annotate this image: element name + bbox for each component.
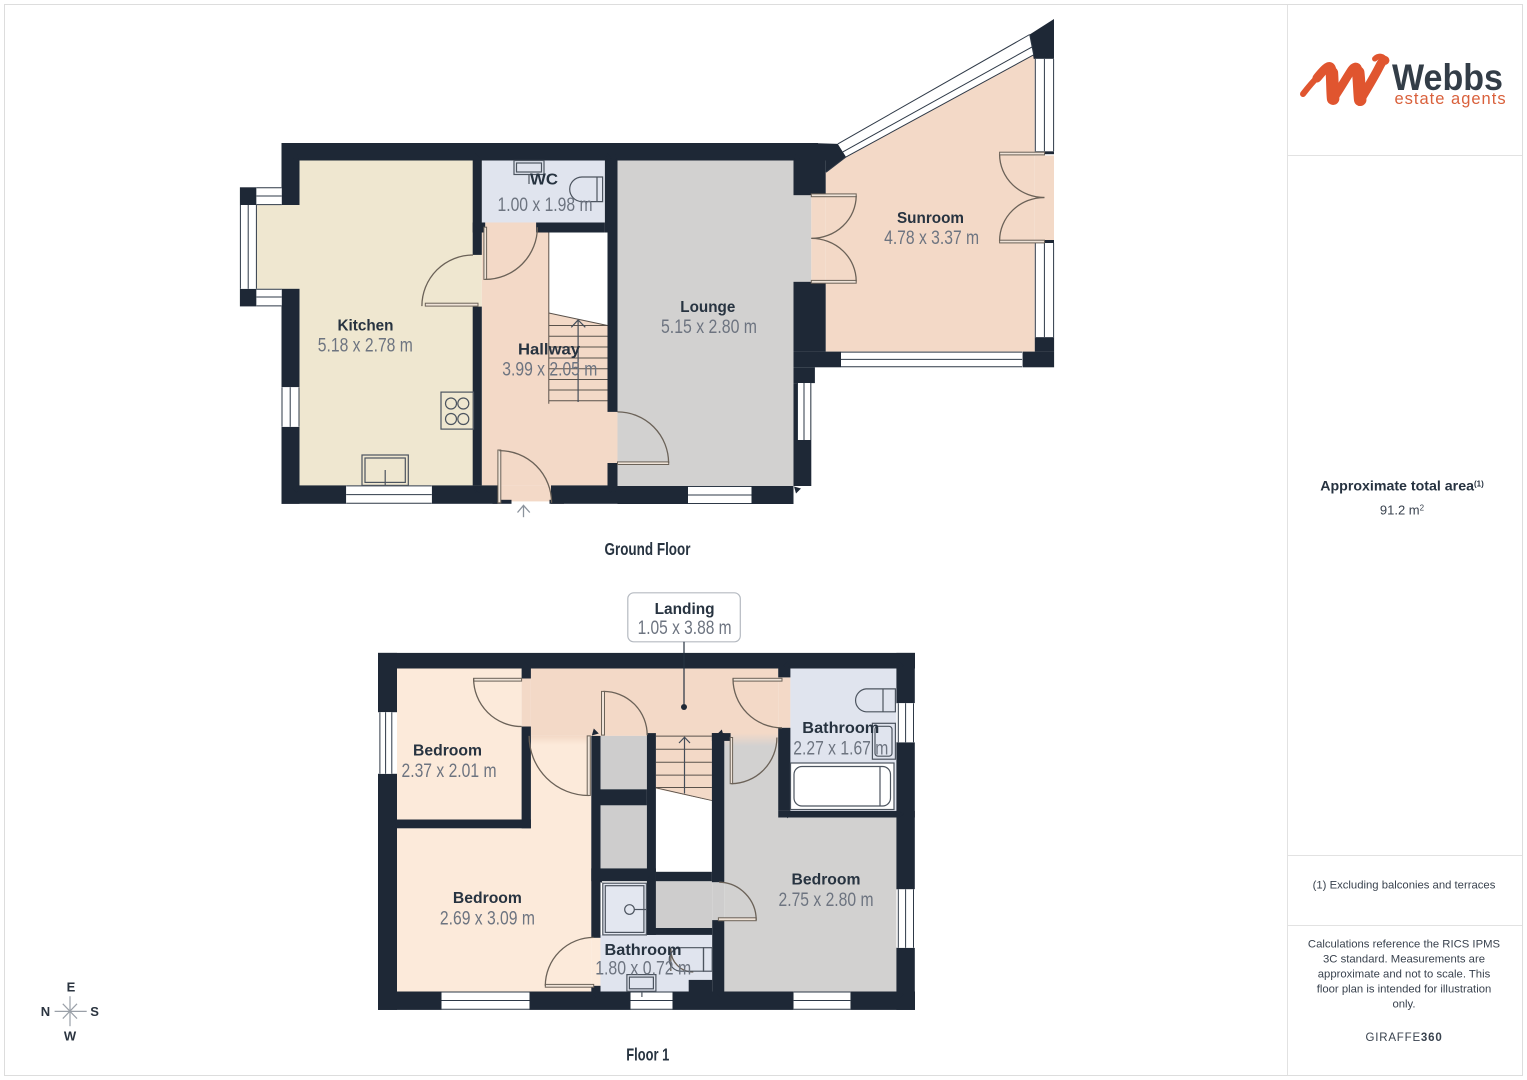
svg-text:4.78 x 3.37 m: 4.78 x 3.37 m: [884, 228, 979, 249]
svg-text:91.2 m2: 91.2 m2: [1380, 503, 1425, 518]
svg-text:Approximate total area(1): Approximate total area(1): [1320, 479, 1484, 495]
svg-text:Bedroom: Bedroom: [413, 743, 482, 760]
svg-text:Bedroom: Bedroom: [453, 890, 522, 907]
svg-text:W: W: [64, 1029, 77, 1044]
svg-text:WC: WC: [530, 172, 558, 189]
svg-text:Kitchen: Kitchen: [338, 318, 394, 335]
svg-text:1.00 x 1.98 m: 1.00 x 1.98 m: [498, 195, 593, 216]
svg-text:Hallway: Hallway: [518, 342, 580, 359]
svg-text:2.37 x 2.01 m: 2.37 x 2.01 m: [402, 761, 497, 782]
svg-text:5.18 x 2.78 m: 5.18 x 2.78 m: [318, 336, 413, 357]
svg-text:estate agents: estate agents: [1395, 90, 1507, 108]
svg-text:Landing: Landing: [655, 601, 715, 618]
svg-text:Lounge: Lounge: [680, 299, 735, 316]
svg-text:1.05 x 3.88 m: 1.05 x 3.88 m: [638, 618, 732, 639]
svg-text:(1) Excluding balconies and te: (1) Excluding balconies and terraces: [1313, 880, 1496, 892]
svg-text:5.15 x 2.80 m: 5.15 x 2.80 m: [661, 317, 757, 338]
svg-text:2.27 x 1.67 m: 2.27 x 1.67 m: [793, 739, 888, 760]
svg-text:GIRAFFE360: GIRAFFE360: [1365, 1032, 1442, 1044]
svg-text:1.80 x 0.72 m: 1.80 x 0.72 m: [595, 959, 691, 980]
svg-text:Bathroom: Bathroom: [605, 942, 682, 959]
svg-text:3.99 x 2.05 m: 3.99 x 2.05 m: [502, 360, 597, 381]
svg-text:Bathroom: Bathroom: [802, 720, 879, 737]
svg-text:N: N: [41, 1004, 50, 1019]
svg-text:Bedroom: Bedroom: [792, 872, 861, 889]
svg-text:S: S: [90, 1004, 99, 1019]
svg-text:2.69 x 3.09 m: 2.69 x 3.09 m: [440, 909, 535, 930]
svg-text:3C standard. Measurements are: 3C standard. Measurements are: [1323, 954, 1485, 966]
svg-text:Ground Floor: Ground Floor: [605, 539, 691, 559]
svg-text:Sunroom: Sunroom: [897, 210, 964, 227]
svg-text:approximate and not to scale.: approximate and not to scale. This: [1318, 969, 1491, 981]
svg-text:2.75 x 2.80 m: 2.75 x 2.80 m: [779, 890, 874, 911]
svg-text:E: E: [67, 979, 76, 994]
svg-text:Floor 1: Floor 1: [626, 1045, 669, 1065]
svg-text:only.: only.: [1392, 999, 1415, 1011]
svg-text:Calculations reference the RIC: Calculations reference the RICS IPMS: [1308, 939, 1501, 951]
svg-text:floor plan is intended for ill: floor plan is intended for illustration: [1317, 984, 1492, 996]
